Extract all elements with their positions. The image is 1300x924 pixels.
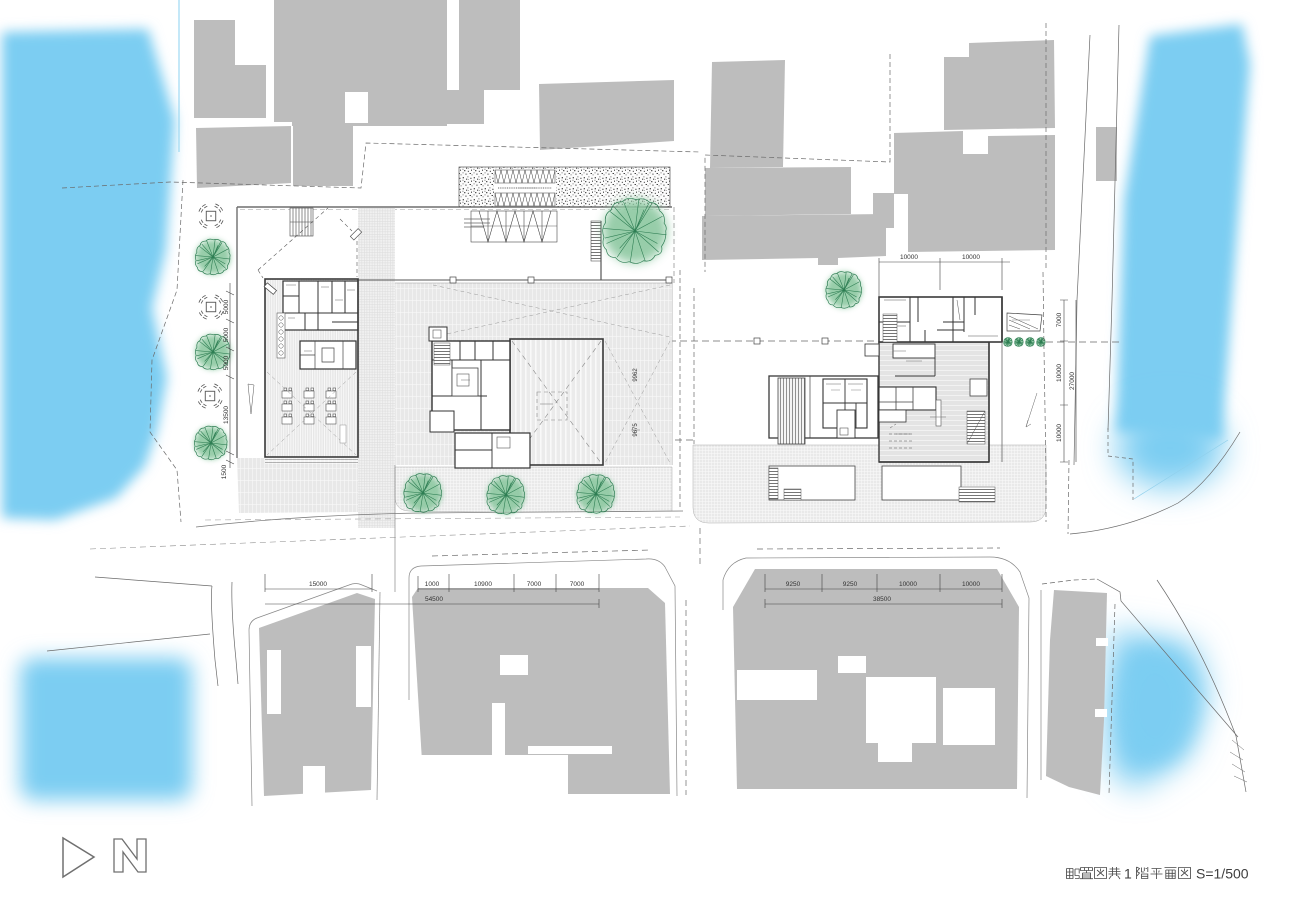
svg-text:1000: 1000 [425, 581, 440, 588]
svg-text:27000: 27000 [1069, 372, 1076, 390]
svg-text:1500: 1500 [221, 464, 228, 479]
svg-text:5000: 5000 [223, 355, 230, 370]
svg-text:5000: 5000 [223, 299, 230, 314]
svg-text:10000: 10000 [899, 581, 917, 588]
svg-text:7000: 7000 [570, 581, 585, 588]
svg-text:5000: 5000 [223, 327, 230, 342]
svg-text:10900: 10900 [474, 581, 492, 588]
svg-text:13500: 13500 [223, 406, 230, 424]
svg-text:9250: 9250 [786, 581, 801, 588]
svg-text:10000: 10000 [1056, 364, 1063, 382]
svg-text:54500: 54500 [425, 596, 443, 603]
svg-text:9250: 9250 [843, 581, 858, 588]
svg-text:9962: 9962 [633, 368, 639, 382]
svg-text:10000: 10000 [962, 581, 980, 588]
svg-text:S=1/500: S=1/500 [1196, 866, 1249, 882]
svg-text:1: 1 [1124, 866, 1132, 882]
svg-text:7000: 7000 [1056, 312, 1063, 327]
svg-text:7000: 7000 [527, 581, 542, 588]
svg-text:10000: 10000 [1056, 424, 1063, 442]
svg-text:10000: 10000 [900, 254, 918, 261]
svg-text:10000: 10000 [962, 254, 980, 261]
svg-text:15000: 15000 [309, 581, 327, 588]
svg-text:38500: 38500 [873, 596, 891, 603]
svg-text:9675: 9675 [633, 423, 639, 437]
